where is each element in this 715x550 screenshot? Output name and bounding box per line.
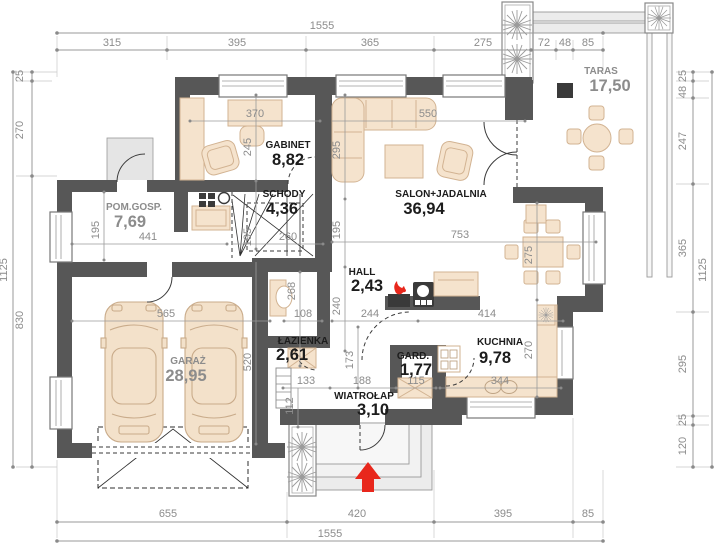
room-label-gabinet: GABINET 8,82 <box>266 140 311 169</box>
schody-name: SCHODY <box>263 189 306 200</box>
room-label-garaz: GARAŻ 28,95 <box>165 354 206 385</box>
dim-kuchnia-w: 414 <box>478 308 496 320</box>
dim-garaz-w: 565 <box>157 308 175 320</box>
dim-top-0: 315 <box>103 37 121 49</box>
dim-wiatrolap-w1: 133 <box>297 375 315 387</box>
coffee-table <box>385 145 423 178</box>
window <box>467 396 535 418</box>
dim-lazienka-h: 268 <box>286 282 298 300</box>
dim-schody-w: 260 <box>279 231 297 243</box>
dim-top-5: 48 <box>559 37 571 49</box>
wiatrolap-area: 3,10 <box>357 401 389 419</box>
dim-right-total: 1125 <box>697 258 709 282</box>
gabinet-area: 8,82 <box>272 151 304 169</box>
dim-hall-w: 244 <box>361 308 379 320</box>
window <box>50 212 72 262</box>
dim-salon-h: 295 <box>331 141 343 159</box>
dim-left-0: 25 <box>14 70 26 82</box>
garaz-area: 28,95 <box>165 367 206 385</box>
pergola-beam-vertical <box>667 33 672 277</box>
window <box>443 75 505 97</box>
gabinet-name: GABINET <box>266 140 311 151</box>
dim-right-2: 247 <box>677 132 689 150</box>
dim-left-2: 830 <box>14 311 26 329</box>
window <box>336 75 406 97</box>
window <box>219 75 287 97</box>
dim-bottom-1: 420 <box>348 508 366 520</box>
step <box>314 423 409 464</box>
lazienka-area: 2,61 <box>276 346 308 364</box>
dim-gabinet-h: 245 <box>242 138 254 156</box>
dim-top-3: 275 <box>474 37 492 49</box>
dim-top-4: 72 <box>538 37 550 49</box>
dim-schody-side-l: 195 <box>242 228 254 246</box>
dim-wiatrolap-side: 112 <box>284 397 296 415</box>
dim-left-total: 1125 <box>0 258 10 282</box>
dim-right-6: 120 <box>677 437 689 455</box>
sink-icon <box>219 193 230 204</box>
hall-counter <box>434 272 478 296</box>
dim-right-4: 295 <box>677 355 689 373</box>
planter-box <box>502 2 533 83</box>
dim-salon-l: 753 <box>451 229 469 241</box>
dim-bottom-0: 655 <box>159 508 177 520</box>
dim-top-6: 85 <box>582 37 594 49</box>
hall-area: 2,43 <box>351 277 383 295</box>
planter-box <box>289 424 316 496</box>
dim-garaz-h: 520 <box>242 353 254 371</box>
salon-name: SALON+JADALNIA <box>395 189 486 200</box>
pergola-beam-vertical <box>647 33 652 277</box>
armchair <box>436 140 475 182</box>
window <box>50 377 72 429</box>
dim-kuchnia-counter: 344 <box>491 375 509 387</box>
pom-gosp-area: 7,69 <box>114 213 146 231</box>
wardrobe <box>180 98 204 180</box>
terrace-post <box>557 83 573 98</box>
taras-name: TARAS <box>584 66 618 77</box>
kuchnia-area: 9,78 <box>479 349 511 367</box>
floor-plan-canvas: 1555 315 395 365 275 72 48 85 655 420 39… <box>0 0 715 550</box>
cabinet <box>526 205 546 223</box>
dim-right-3: 365 <box>677 239 689 257</box>
dim-schody-side-r: 195 <box>331 221 343 239</box>
dim-jadalnia-h: 275 <box>523 246 535 264</box>
dim-pomgosp-w: 441 <box>139 231 157 243</box>
dim-hall-h: 240 <box>331 297 343 315</box>
garaz-name: GARAŻ <box>170 354 206 367</box>
dim-gabinet-w: 370 <box>246 108 264 120</box>
pom-gosp-name: POM.GOSP. <box>106 202 162 213</box>
kuchnia-name: KUCHNIA <box>477 337 523 348</box>
dim-top-1: 395 <box>228 37 246 49</box>
schody-area: 4,36 <box>266 200 298 218</box>
window <box>583 212 605 284</box>
dim-wiatrolap-h: 173 <box>344 351 356 369</box>
dim-bottom-total: 1555 <box>318 528 342 540</box>
car <box>101 302 167 442</box>
room-label-gard: GARD. 1,77 <box>397 351 432 379</box>
dim-right-5: 25 <box>677 414 689 426</box>
dim-pomgosp-h: 195 <box>90 221 102 239</box>
dim-wiatrolap-w2: 188 <box>353 375 371 387</box>
pergola-beam <box>533 23 645 33</box>
boiler <box>413 282 434 307</box>
dim-bottom-2: 395 <box>494 508 512 520</box>
dim-left-1: 270 <box>14 121 26 139</box>
gard-area: 1,77 <box>400 361 432 379</box>
dim-lazienka-w: 108 <box>294 308 312 320</box>
salon-area: 36,94 <box>403 200 445 218</box>
dim-bottom-3: 85 <box>582 508 594 520</box>
dim-top-2: 365 <box>361 37 379 49</box>
dim-right-1: 48 <box>677 86 689 98</box>
dim-salon-w: 550 <box>419 108 437 120</box>
taras-area: 17,50 <box>589 77 630 95</box>
dim-right-0: 25 <box>677 70 689 82</box>
pergola-beam <box>533 12 645 21</box>
dim-kuchnia-h: 270 <box>523 341 535 359</box>
floor-plan-page: 1555 315 395 365 275 72 48 85 655 420 39… <box>0 0 715 550</box>
dim-top-total: 1555 <box>310 20 334 32</box>
